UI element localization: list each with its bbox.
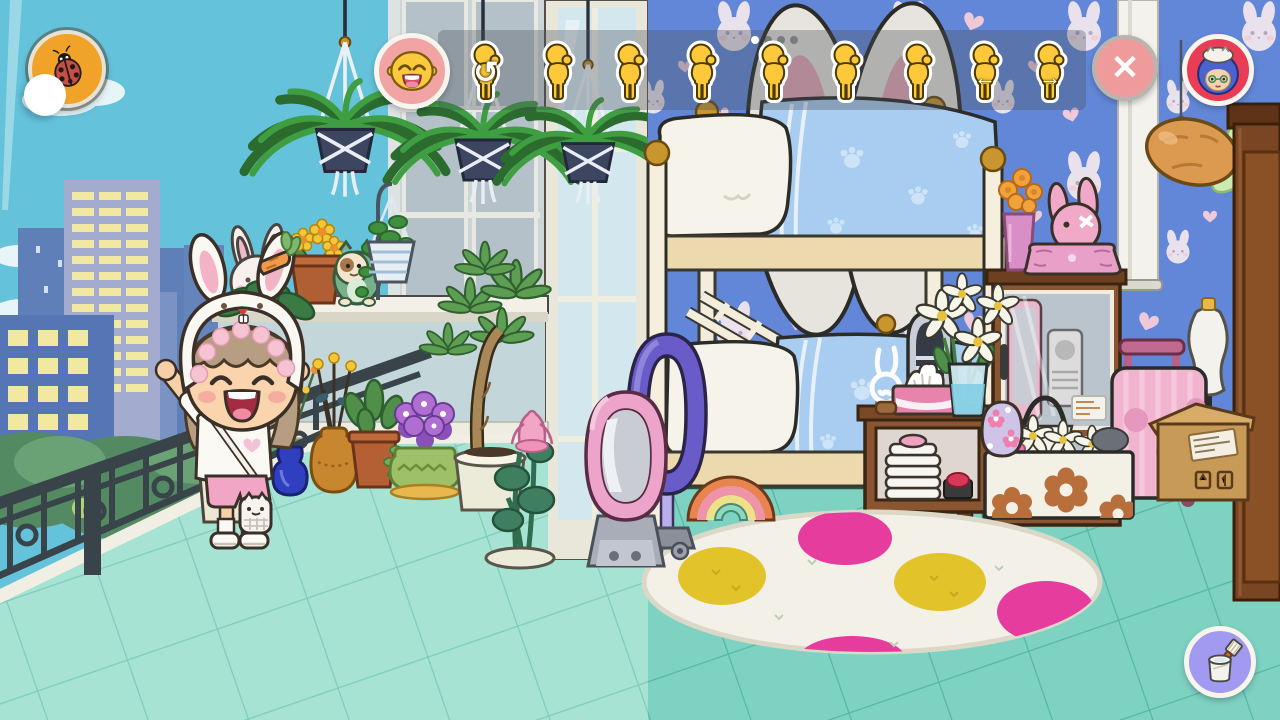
push-button <box>944 473 972 498</box>
pose-button-3[interactable] <box>598 36 662 108</box>
pose-button-turn-right[interactable]: → <box>1018 36 1082 108</box>
wardrobe[interactable] <box>1228 104 1280 600</box>
pose-button-5[interactable] <box>742 36 806 108</box>
paint-bucket-icon <box>1193 635 1247 689</box>
pose-button-2[interactable] <box>526 36 590 108</box>
player-avatar-icon <box>1189 41 1247 99</box>
pose-button-turn-left[interactable]: ← <box>953 36 1017 108</box>
pose-button-7[interactable] <box>886 36 950 108</box>
game-stage: ↺ ← → ✕ <box>0 0 1280 720</box>
blue-vase[interactable] <box>273 447 307 495</box>
boba-bag <box>240 493 271 533</box>
pose-button-reset[interactable]: ↺ <box>454 36 518 108</box>
pose-button-4[interactable] <box>670 36 734 108</box>
close-icon: ✕ <box>1111 51 1140 85</box>
cardboard-box[interactable] <box>1150 404 1254 500</box>
pink-fan[interactable] <box>586 392 666 566</box>
avatar-button[interactable] <box>1182 34 1254 106</box>
towel-stack <box>886 435 940 499</box>
laughing-emoji-icon <box>385 44 439 98</box>
pose-button-6[interactable] <box>814 36 878 108</box>
emoji-button[interactable] <box>374 33 450 109</box>
close-button[interactable]: ✕ <box>1092 35 1158 101</box>
white-ball[interactable] <box>24 74 66 116</box>
easter-egg[interactable] <box>982 402 1022 456</box>
paint-button[interactable] <box>1184 626 1256 698</box>
